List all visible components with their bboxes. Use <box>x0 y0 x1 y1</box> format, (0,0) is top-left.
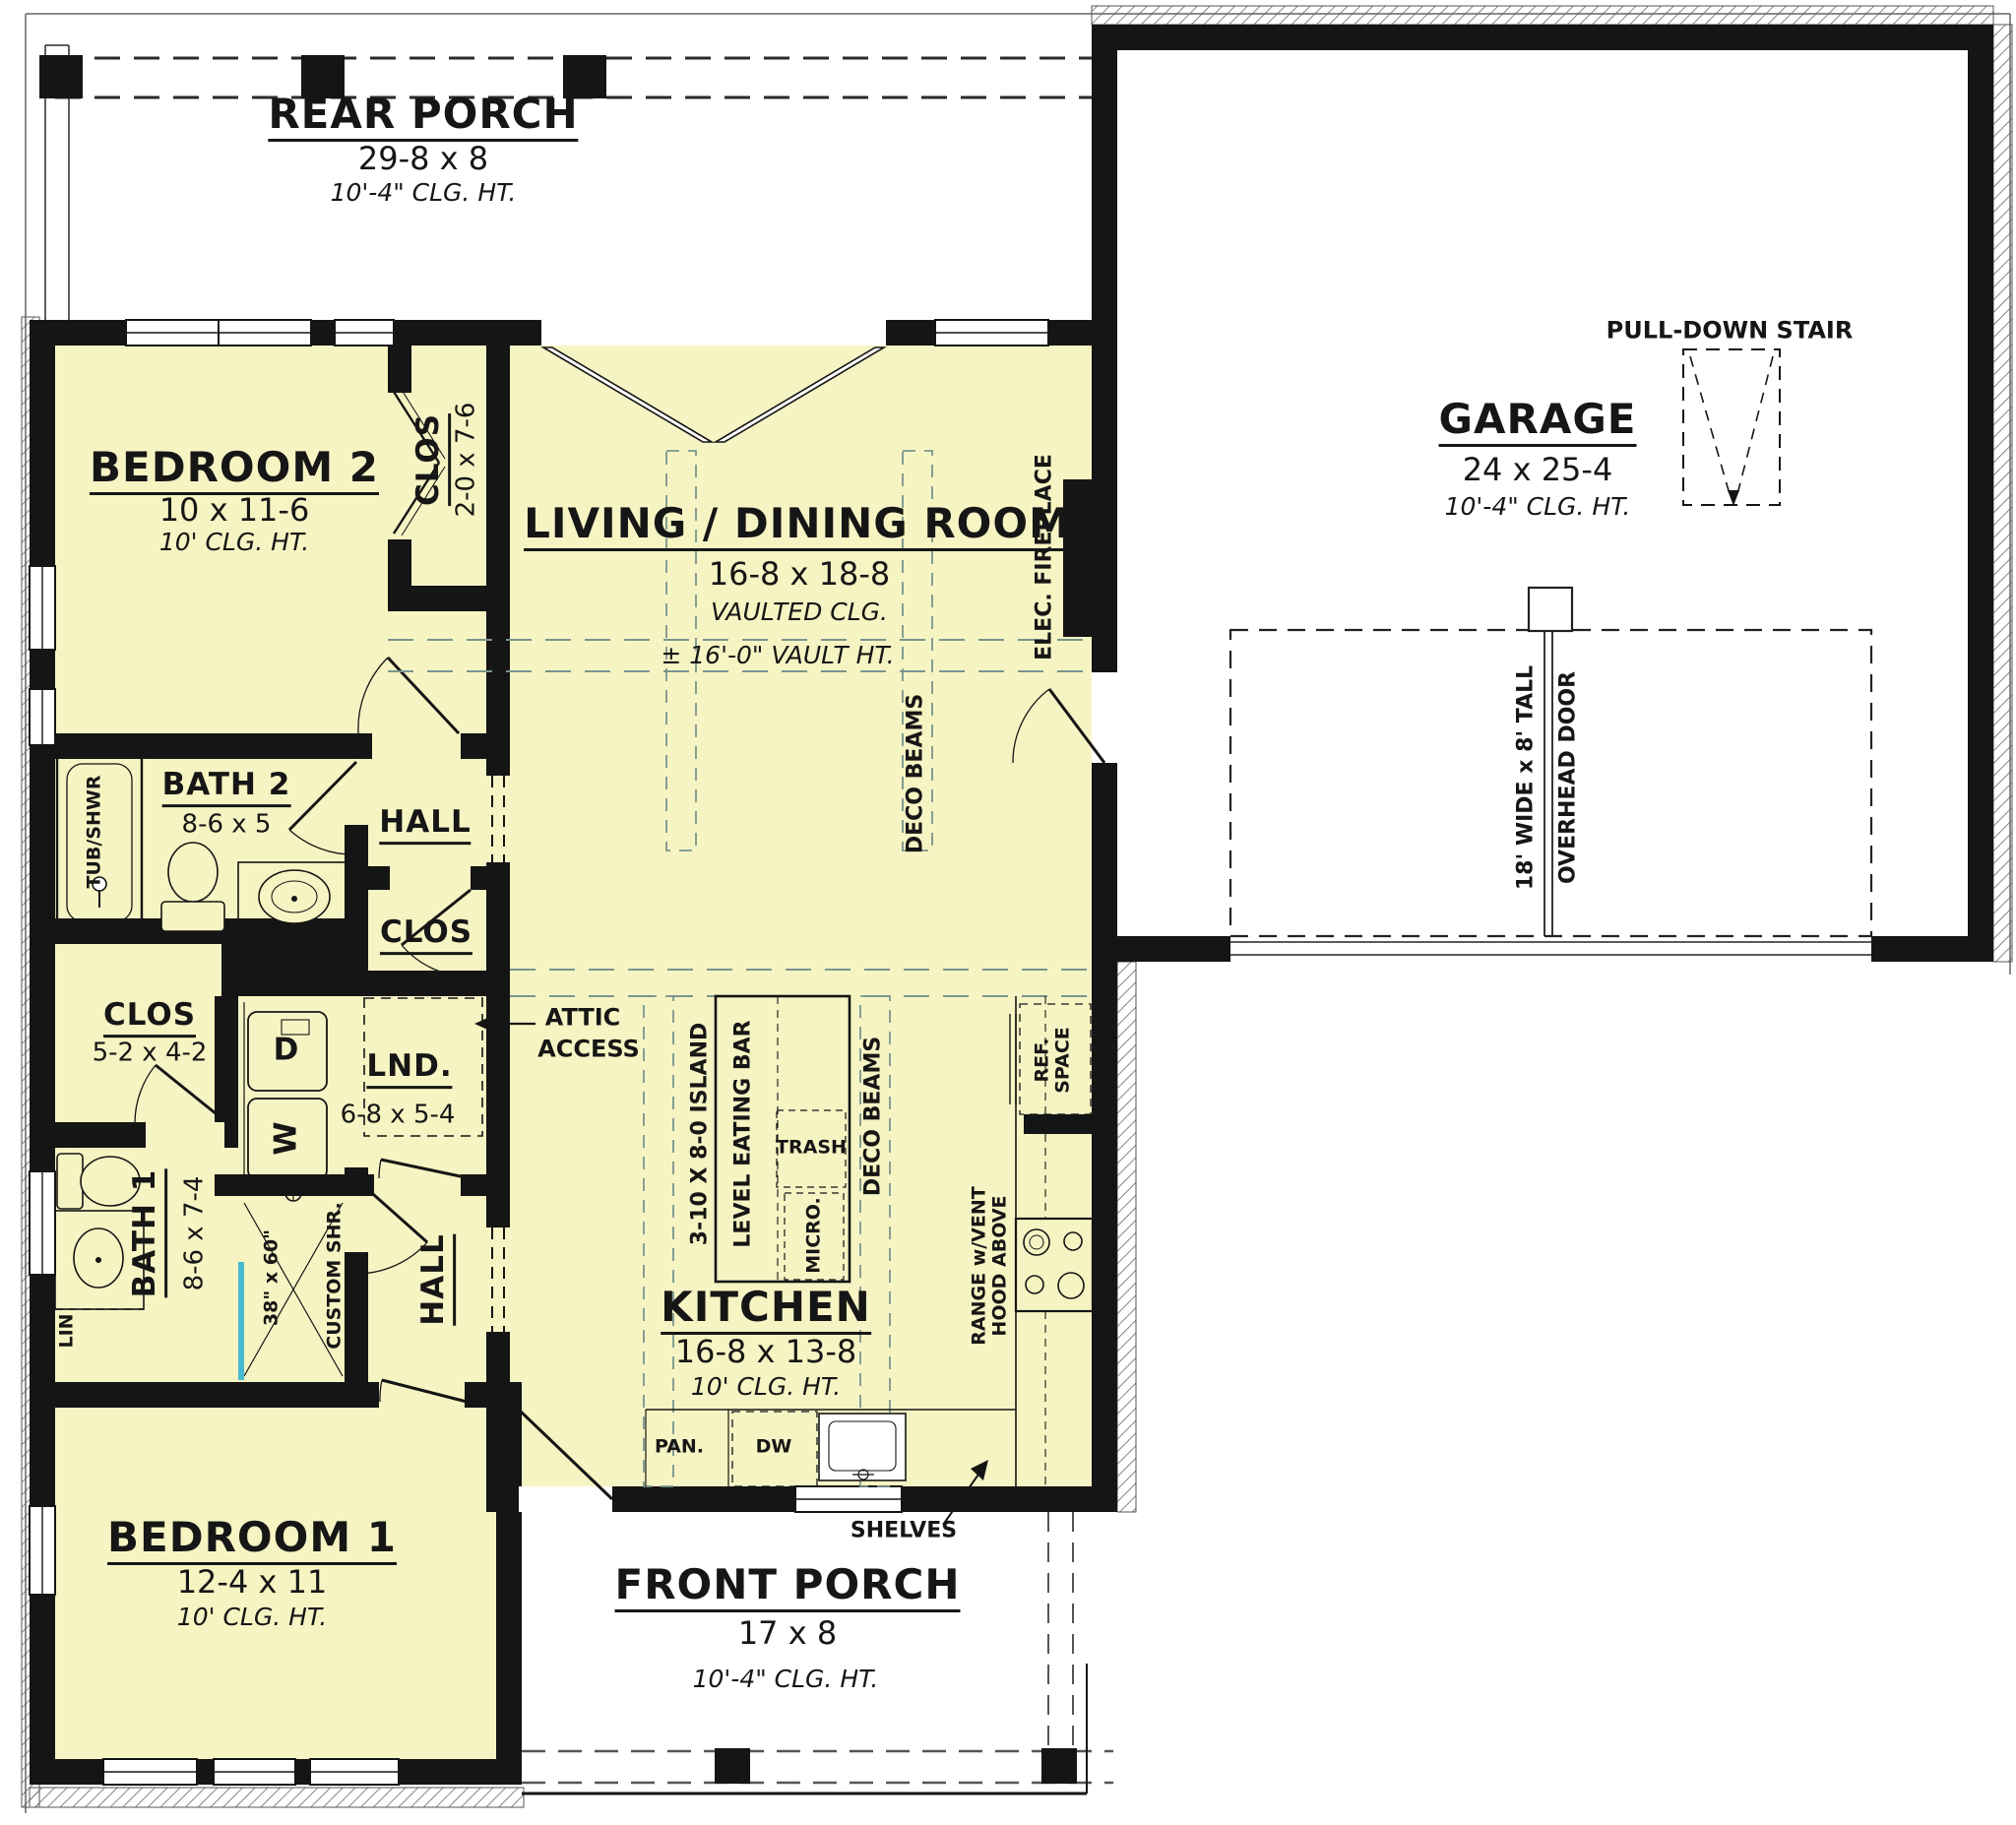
garage-dims: 24 x 25-4 <box>1463 453 1613 488</box>
bath2-title: BATH 2 <box>162 768 291 807</box>
living-title: LIVING / DINING ROOM <box>524 500 1071 551</box>
range-line2: HOOD ABOVE <box>990 1186 1011 1345</box>
range <box>1016 1219 1093 1311</box>
bedroom2-closet-dims: 2-0 x 7-6 <box>452 403 480 518</box>
bedroom2-ceiling: 10' CLG. HT. <box>159 529 309 556</box>
living-ceiling: VAULTED CLG. <box>711 598 888 626</box>
range-line1: RANGE w/VENT <box>970 1186 990 1345</box>
garage-title: GARAGE <box>1439 396 1637 447</box>
deco-beams-living-label: DECO BEAMS <box>905 694 929 853</box>
bedroom2-closet-title: CLOS <box>411 413 451 506</box>
bedroom1-title: BEDROOM 1 <box>107 1514 397 1565</box>
shelves-label: SHELVES <box>850 1520 957 1544</box>
bedroom1-ceiling: 10' CLG. HT. <box>177 1604 327 1631</box>
custom-shower-label: CUSTOM SHR. <box>324 1202 345 1349</box>
bath2-dims: 8-6 x 5 <box>182 810 272 839</box>
kitchen-dims: 16-8 x 13-8 <box>675 1335 857 1370</box>
washer-label: W <box>270 1120 304 1155</box>
front-porch-lines <box>522 1512 1113 1794</box>
dishwasher-label: DW <box>756 1436 792 1457</box>
elec-fireplace-label: ELEC. FIREPLACE <box>1034 454 1058 661</box>
bedroom2-title: BEDROOM 2 <box>90 444 379 495</box>
bath1-dims: 8-6 x 7-4 <box>180 1176 209 1291</box>
dryer-label: D <box>274 1034 300 1068</box>
ref-space-line1: REF. <box>1033 1027 1053 1094</box>
hall-closet-title: CLOS <box>380 915 472 955</box>
fireplace <box>1063 479 1117 637</box>
island-dims-label: 3-10 X 8-0 ISLAND <box>689 1023 714 1246</box>
hall-lower-title: HALL <box>416 1233 456 1325</box>
overhead-door-size-label: 18' WIDE x 8' TALL <box>1515 665 1540 890</box>
bedroom2-dims: 10 x 11-6 <box>159 493 310 529</box>
front-porch-posts <box>715 1748 1077 1784</box>
floor-plan: REAR PORCH 29-8 x 8 10'-4" CLG. HT. GARA… <box>0 0 2016 1825</box>
pull-down-stair-label: PULL-DOWN STAIR <box>1606 318 1854 345</box>
kitchen-title: KITCHEN <box>661 1284 871 1335</box>
bath1-title: BATH 1 <box>128 1169 167 1298</box>
range-label: RANGE w/VENT HOOD ABOVE <box>970 1186 1012 1345</box>
rear-porch-title: REAR PORCH <box>268 91 578 142</box>
micro-label: MICRO. <box>803 1197 824 1274</box>
attic-access-label-1: ATTIC <box>545 1005 621 1032</box>
kitchen-ceiling: 10' CLG. HT. <box>691 1373 841 1401</box>
front-porch-title: FRONT PORCH <box>615 1561 961 1612</box>
ref-space-line2: SPACE <box>1053 1027 1074 1094</box>
linen-label: LIN <box>56 1313 77 1348</box>
tub-shwr-label: TUB/SHWR <box>84 776 104 889</box>
front-porch-ceiling: 10'-4" CLG. HT. <box>693 1666 879 1693</box>
overhead-door-label: OVERHEAD DOOR <box>1557 671 1582 884</box>
laundry-title: LND. <box>366 1049 452 1089</box>
closet-bath1-title: CLOS <box>103 998 196 1038</box>
eating-bar-label: LEVEL EATING BAR <box>732 1020 757 1247</box>
front-porch-dims: 17 x 8 <box>738 1616 837 1652</box>
laundry-dims: 6-8 x 5-4 <box>341 1101 456 1129</box>
bedroom1-dims: 12-4 x 11 <box>177 1565 328 1601</box>
pantry-label: PAN. <box>655 1436 704 1457</box>
overhead-door <box>1230 588 1871 955</box>
ref-space-label: REF. SPACE <box>1033 1027 1075 1094</box>
vault-height-note: ± 16'-0" VAULT HT. <box>661 642 894 669</box>
deco-beams-kitchen-label: DECO BEAMS <box>862 1037 887 1196</box>
rear-porch-ceiling: 10'-4" CLG. HT. <box>331 179 517 207</box>
garage-ceiling: 10'-4" CLG. HT. <box>1445 493 1631 521</box>
pull-down-stair <box>1683 349 1780 506</box>
rear-porch-dims: 29-8 x 8 <box>358 142 488 177</box>
hall-upper-title: HALL <box>379 805 471 845</box>
closet-bath1-dims: 5-2 x 4-2 <box>93 1038 208 1067</box>
attic-access-label-2: ACCESS <box>537 1037 640 1063</box>
shower-dims-label: 38" x 60" <box>261 1229 282 1326</box>
living-dims: 16-8 x 18-8 <box>709 557 891 593</box>
trash-label: TRASH <box>776 1137 847 1158</box>
